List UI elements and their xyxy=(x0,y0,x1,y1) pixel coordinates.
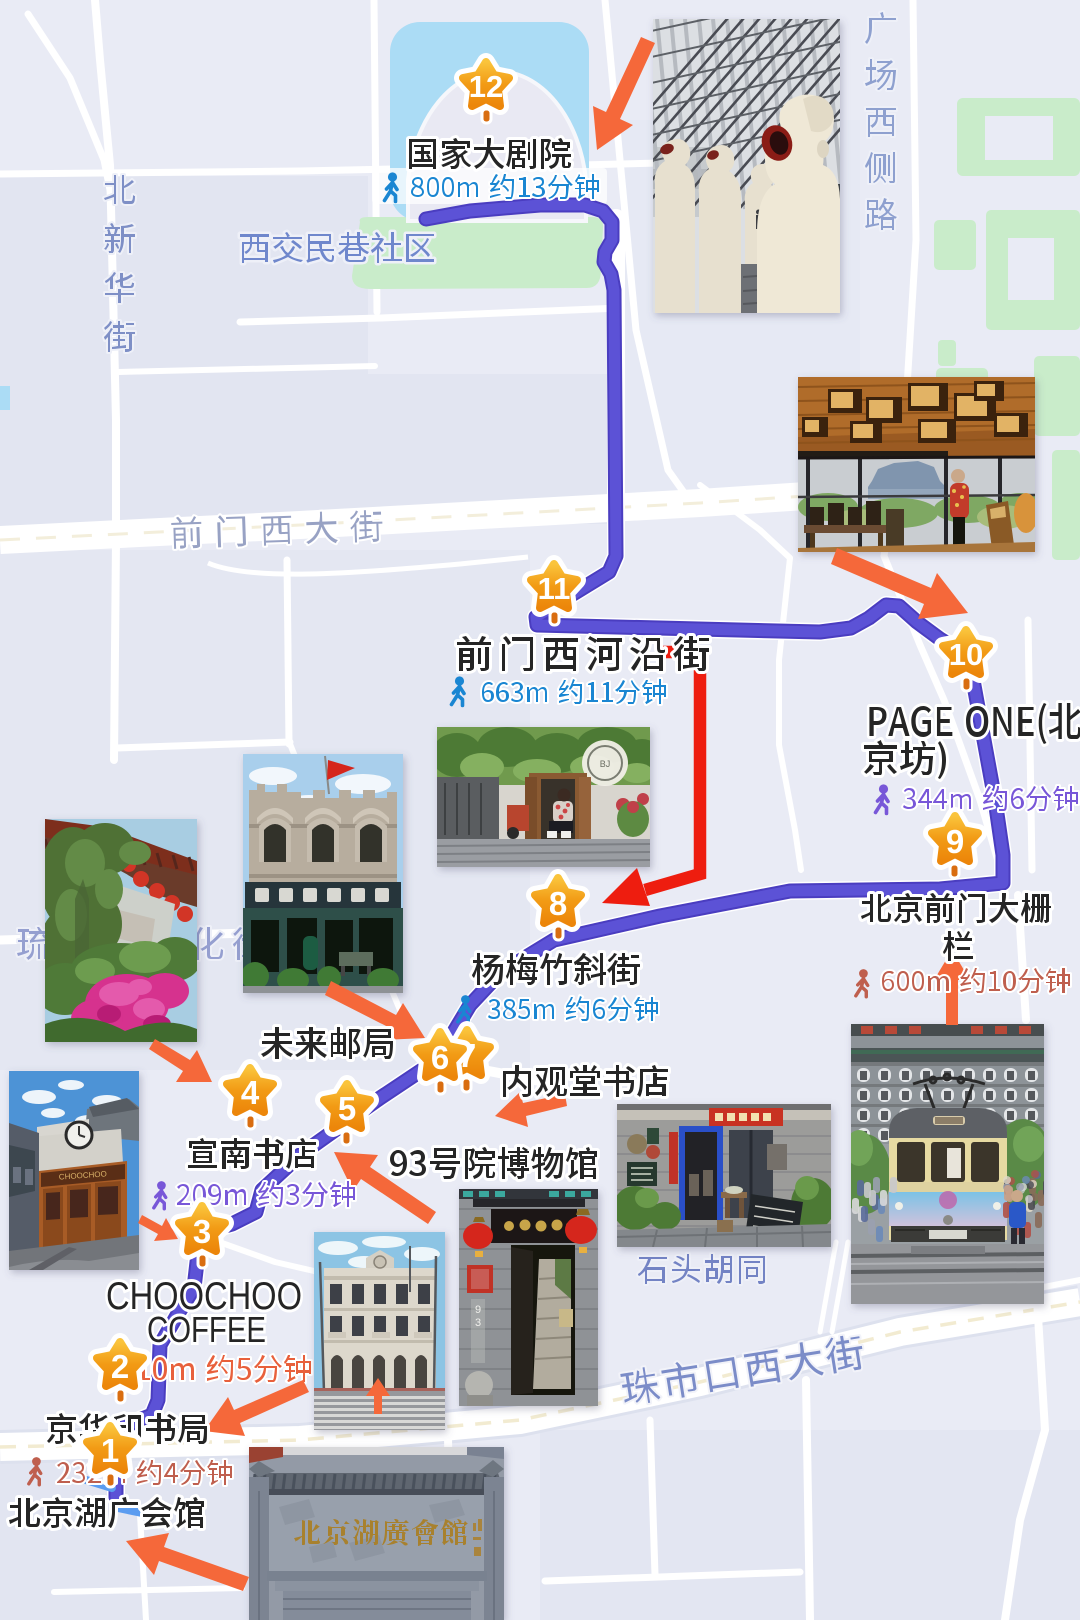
svg-text:1: 1 xyxy=(101,1432,119,1469)
svg-text:6: 6 xyxy=(431,1039,449,1076)
svg-text:11: 11 xyxy=(538,571,571,606)
svg-text:COFFEE: COFFEE xyxy=(147,1309,266,1350)
svg-text:3: 3 xyxy=(475,1317,481,1329)
svg-text:BJ: BJ xyxy=(600,759,611,769)
svg-text:2: 2 xyxy=(111,1348,129,1385)
svg-text:8: 8 xyxy=(549,885,567,922)
svg-text:5: 5 xyxy=(338,1090,356,1127)
svg-text:10: 10 xyxy=(949,637,983,672)
svg-text:3: 3 xyxy=(193,1213,211,1250)
svg-text:9: 9 xyxy=(946,823,964,860)
svg-text:9: 9 xyxy=(475,1304,481,1316)
svg-text:4: 4 xyxy=(241,1074,260,1111)
svg-text:12: 12 xyxy=(469,69,503,104)
